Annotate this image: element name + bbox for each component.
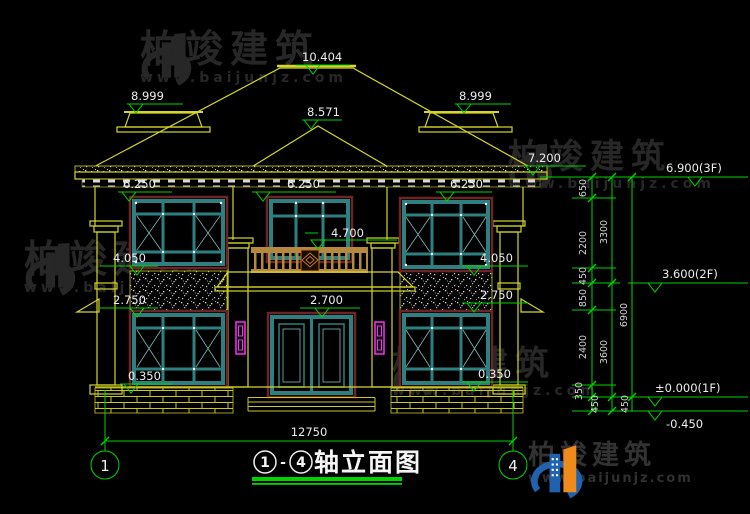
elev-left-wing: 8.999: [131, 89, 164, 103]
dim-450a: 450: [578, 267, 589, 285]
elev-eave: 7.200: [528, 151, 561, 165]
drawing-title: 1 - 4 轴立面图: [252, 448, 422, 485]
elev-6250-right: 6.250: [450, 177, 483, 191]
dim-6900: 6900: [619, 303, 630, 327]
elev-1f: ±0.000(1F): [655, 381, 720, 395]
axis-numbers: 1 4: [100, 457, 518, 475]
dim-3600: 3600: [599, 340, 610, 364]
title-axis-to: 4: [296, 455, 306, 471]
elev-right-wing: 8.999: [459, 89, 492, 103]
elev-6250-left: 6.250: [123, 177, 156, 191]
elev-4050-right: 4.050: [480, 251, 513, 265]
dim-3300: 3300: [599, 220, 610, 244]
title-separator: -: [280, 455, 286, 471]
dim-850: 850: [578, 289, 589, 307]
elev-2750-left: 2.750: [113, 293, 146, 307]
entrance-door: [268, 313, 355, 397]
elev-0350-right: 0.350: [478, 367, 511, 381]
elev-0350-left: 0.350: [128, 369, 161, 383]
dim-overall-width: 12750: [291, 425, 328, 439]
dim-450b: 450: [590, 395, 601, 413]
cad-elevation-drawing: 柏竣建筑 www.baijunjz.com 柏竣建筑 www.baijunjz.…: [0, 0, 750, 514]
dim-650: 650: [578, 179, 589, 197]
side-roof-bracket-right: [521, 299, 543, 312]
dim-2200: 2200: [578, 231, 589, 255]
dim-2400: 2400: [578, 335, 589, 359]
title-underline-thick: [252, 477, 402, 481]
side-roof-bracket-left: [77, 299, 99, 312]
balcony: [215, 247, 415, 291]
downspout-right: [375, 322, 384, 354]
porch-roof: [217, 272, 413, 287]
downspout-left: [236, 322, 245, 354]
elev-balcony: 4.700: [331, 226, 364, 240]
elev-porch-ridge: 8.571: [307, 105, 340, 119]
dim-450c: 450: [620, 395, 631, 413]
title-axis-from: 1: [260, 455, 270, 471]
company-logo-icon: [528, 441, 586, 503]
elev-6250-center: 6.250: [287, 177, 320, 191]
window-2f-right: [400, 198, 492, 271]
entrance-steps: [248, 398, 375, 412]
title-name: 轴立面图: [314, 448, 422, 477]
elevation-linework: 10.404 8.999 8.999 8.571 7.200 6.900(3F)…: [0, 0, 750, 514]
title-underline-thin: [252, 483, 402, 485]
axis-number-1: 1: [100, 457, 110, 475]
elev-ground: -0.450: [666, 417, 703, 431]
dim-350: 350: [574, 382, 585, 400]
elev-4050-left: 4.050: [113, 251, 146, 265]
axis-number-4: 4: [508, 457, 518, 475]
elev-2750-right: 2.750: [480, 288, 513, 302]
elev-2f: 3.600(2F): [662, 267, 718, 281]
elev-ridge: 10.404: [302, 50, 342, 64]
elev-3f: 6.900(3F): [666, 161, 722, 175]
elev-2700: 2.700: [310, 293, 343, 307]
company-logo: 柏竣建筑 www.baijunjz.com: [528, 441, 693, 486]
